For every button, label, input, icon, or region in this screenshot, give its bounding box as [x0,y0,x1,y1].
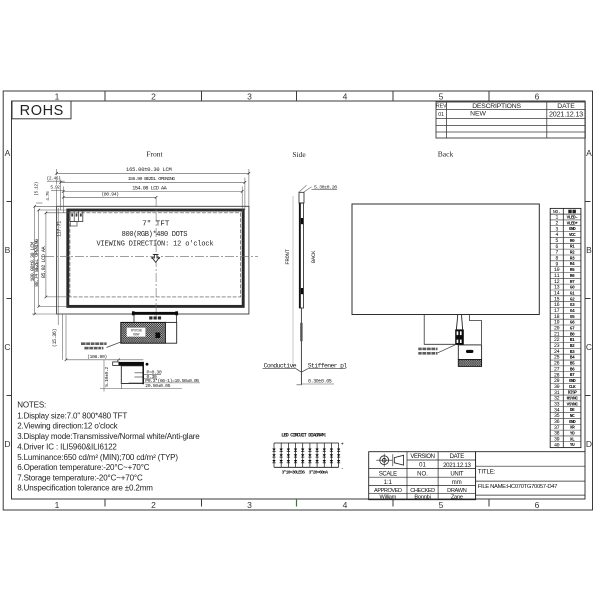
svg-text:D: D [586,439,592,449]
svg-text:2: 2 [151,92,156,102]
svg-text:C: C [586,342,592,352]
svg-text:5: 5 [439,92,444,102]
svg-text:VSYNC: VSYNC [567,402,579,407]
svg-text:B: B [5,245,11,255]
svg-text:A: A [5,148,11,158]
svg-text:117.71: 117.71 [57,221,63,237]
svg-text:NOTES:: NOTES: [17,400,46,409]
svg-text:CLK: CLK [569,385,576,390]
svg-text:VERSION: VERSION [410,454,434,460]
svg-text:ROHS: ROHS [20,103,64,119]
svg-text:1:1: 1:1 [384,480,393,486]
svg-text:7.Storage temperature:-20°C~+7: 7.Storage temperature:-20°C~+70°C [17,473,143,482]
svg-text:#8%#: #8%# [133,333,140,337]
svg-text:5.10±0.2: 5.10±0.2 [104,367,110,387]
svg-text:GND: GND [569,420,576,425]
svg-text:D: D [4,439,10,449]
svg-text:REV: REV [436,104,447,110]
svg-text:B: B [586,245,592,255]
svg-text:BACK: BACK [310,250,317,263]
svg-text:5.Luminance:650 cd/m² (MIN);70: 5.Luminance:650 cd/m² (MIN);700 cd/m² (T… [17,453,178,462]
svg-text:(108.90): (108.90) [87,354,107,360]
svg-text:DESCRIPTIONS: DESCRIPTIONS [472,103,521,110]
svg-text:GND: GND [569,227,576,232]
svg-text:(2.46): (2.46) [47,175,61,181]
svg-text:2.Viewing direction:12 o'clock: 2.Viewing direction:12 o'clock [17,422,118,431]
svg-text:(80.94): (80.94) [101,192,119,198]
svg-text:85.92 LCD AA: 85.92 LCD AA [41,245,47,278]
svg-text:-: - [341,466,344,472]
svg-text:40: 40 [554,442,560,448]
svg-text:A: A [586,148,592,158]
svg-text:GND: GND [569,379,576,384]
svg-text:88.74 BEZEL OPENING: 88.74 BEZEL OPENING [34,239,40,287]
svg-text:1: 1 [55,500,60,510]
svg-text:4: 4 [343,500,348,510]
svg-text:FILE NAME:HC070TG70057-D47: FILE NAME:HC070TG70057-D47 [478,484,557,490]
svg-text:+: + [341,441,344,447]
svg-text:6.Operation temperature:-20°C~: 6.Operation temperature:-20°C~+70°C [17,463,150,472]
svg-text:6: 6 [535,500,540,510]
svg-text:01: 01 [438,112,444,118]
svg-text:Back: Back [438,150,454,159]
svg-text:8.Unspecification tolerance ar: 8.Unspecification tolerance are ±0.2mm [17,484,153,493]
svg-text:(15.36): (15.36) [52,329,58,348]
svg-text:165.00±0.30 LCM: 165.00±0.30 LCM [126,167,172,173]
svg-text:2021.12.13: 2021.12.13 [443,462,471,469]
svg-text:1.Display size:7.0" 800*480 TF: 1.Display size:7.0" 800*480 TFT [17,411,127,420]
svg-text:1: 1 [55,92,60,102]
svg-text:3: 3 [247,500,252,510]
svg-text:APPROVED: APPROVED [374,488,402,494]
svg-text:UNIT: UNIT [450,471,463,477]
svg-text:VCC: VCC [569,233,576,238]
svg-text:SCALE: SCALE [379,471,397,477]
svg-text:01: 01 [419,463,426,469]
svg-text:Side: Side [292,150,306,159]
svg-text:TITLE:: TITLE: [478,468,496,475]
svg-text:DISP: DISP [568,391,578,396]
svg-text:mm: mm [452,480,462,486]
svg-text:FRONT: FRONT [284,248,291,264]
svg-text:VLED+: VLED+ [567,221,579,226]
svg-text:DATE: DATE [450,454,465,460]
svg-text:C: C [4,342,10,352]
svg-text:3: 3 [247,92,252,102]
svg-text:3*10=30LEDS 3*20=60mA: 3*10=30LEDS 3*20=60mA [282,470,329,475]
svg-text:2: 2 [151,500,156,510]
svg-text:CHECKED: CHECKED [410,488,435,494]
svg-text:NO.: NO. [417,471,428,477]
svg-text:William: William [379,495,396,501]
svg-text:3.Display mode:Transmissive/No: 3.Display mode:Transmissive/Normal white… [17,432,200,441]
svg-text:154.08 LCD AA: 154.08 LCD AA [132,185,167,191]
svg-text:0.30±0.05: 0.30±0.05 [308,379,332,385]
svg-text:156.90 BEZEL OPENING: 156.90 BEZEL OPENING [128,176,175,182]
svg-text:VIEWING DIRECTION: 12 o'clock: VIEWING DIRECTION: 12 o'clock [96,241,213,249]
svg-text:NEW: NEW [470,110,486,117]
svg-text:Front: Front [146,150,163,159]
svg-text:4.76: 4.76 [45,191,51,201]
svg-text:2021.12.13: 2021.12.13 [549,109,583,118]
svg-text:(5.12): (5.12) [33,182,39,196]
svg-text:6: 6 [535,92,540,102]
svg-text:5: 5 [439,500,444,510]
svg-text:Zane: Zane [451,495,463,501]
svg-text:5.92: 5.92 [50,185,60,191]
svg-text:Bonnbi: Bonnbi [414,495,430,501]
svg-text:VLED-: VLED- [567,216,578,221]
svg-text:DRAWN: DRAWN [447,488,467,494]
svg-text:7" TFT: 7" TFT [142,220,170,228]
svg-text:HSYNC: HSYNC [567,397,579,402]
svg-text:4.Driver IC : ILI5960&ILI6122: 4.Driver IC : ILI5960&ILI6122 [17,442,117,451]
svg-text:800(RGB)*480 DOTS: 800(RGB)*480 DOTS [122,231,188,239]
svg-text:4: 4 [343,92,348,102]
svg-text:LED CIRCUIT DIAGRAM:: LED CIRCUIT DIAGRAM: [281,433,326,439]
